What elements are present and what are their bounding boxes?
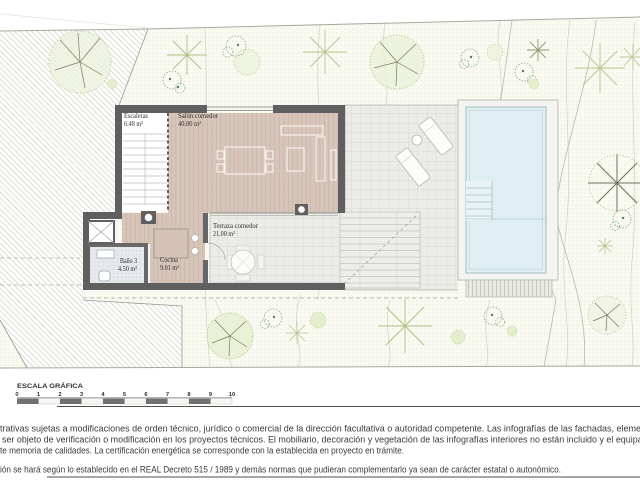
room-name: Escaleras: [124, 112, 148, 120]
room-area: 40.00 m²: [178, 120, 201, 128]
room-name: Terraza comedor: [213, 222, 259, 230]
tree-icon: [588, 296, 626, 334]
room-area: 9.01 m²: [160, 264, 179, 272]
disclaimer-line: trativas sujetas a modificaciones de ord…: [0, 424, 640, 434]
scale-tick-label: 4: [101, 392, 105, 398]
tree-icon: [49, 31, 111, 93]
side-table: [412, 135, 422, 145]
palm-tree-icon: [167, 35, 207, 75]
floor-plan-page: Escaleras 6.48 m² Salón comedor 40.00 m²…: [0, 0, 640, 480]
bush-icon: [451, 330, 465, 344]
room-name: Cocina: [160, 256, 179, 264]
disclaimer-block: trativas sujetas a modificaciones de ord…: [0, 407, 640, 478]
room-name: Salón comedor: [178, 112, 219, 120]
palm-tree-icon: [597, 238, 613, 254]
exterior-stairs: [340, 212, 420, 288]
scale-bar: ESCALA GRÁFICA 0 1 2 3 4 5 6 7 8 9 10: [15, 381, 235, 404]
disclaimer-line: ser objeto de verificación o modificació…: [2, 435, 640, 445]
bush-icon: [507, 326, 517, 336]
scale-segments: [17, 399, 232, 405]
scale-tick-label: 6: [144, 392, 148, 398]
scale-bar-numbers: 0 1 2 3 4 5 6 7 8 9 10: [15, 392, 235, 398]
room-area: 6.48 m²: [124, 120, 143, 128]
room-name: Baño 3: [120, 257, 137, 265]
toilet: [99, 271, 110, 281]
bush-icon: [310, 312, 326, 328]
column-marker: [295, 204, 308, 215]
sink: [97, 250, 114, 258]
palm-tree-icon: [527, 39, 549, 61]
tree-icon: [234, 49, 260, 75]
kitchen-stool: [192, 248, 199, 255]
scale-tick-label: 1: [37, 392, 41, 398]
scale-tick-label: 2: [58, 392, 61, 398]
tree-icon: [487, 44, 503, 60]
scale-tick-label: 10: [229, 392, 235, 398]
bush-icon: [108, 80, 117, 89]
scale-bar-title: ESCALA GRÁFICA: [17, 381, 83, 390]
scale-tick-label: 9: [209, 392, 213, 398]
site-plan-drawing: Escaleras 6.48 m² Salón comedor 40.00 m²…: [0, 0, 640, 480]
palm-tree-icon: [286, 322, 308, 344]
room-area: 4.50 m²: [118, 265, 137, 273]
scale-tick-label: 0: [15, 392, 18, 398]
tree-icon: [370, 35, 424, 89]
palm-tree-icon: [378, 299, 432, 353]
disclaimer-line: ión se hará según lo establecido en el R…: [0, 465, 561, 475]
scale-tick-label: 8: [187, 392, 191, 398]
scale-tick-label: 3: [80, 392, 84, 398]
elevator-shaft: [88, 221, 114, 243]
room-area: 21.00 m²: [213, 230, 235, 238]
pool-steps: [466, 181, 492, 221]
column-marker: [141, 211, 156, 224]
tree-icon: [207, 313, 253, 359]
kitchen-island: [154, 229, 188, 258]
scale-tick-label: 7: [166, 392, 169, 398]
pool-deck: [466, 280, 552, 297]
kitchen-stool: [192, 235, 199, 242]
disclaimer-line: te memoria de calidades. La certificació…: [0, 446, 404, 456]
scale-tick-label: 5: [123, 392, 127, 398]
bush-icon: [529, 79, 539, 89]
pool: [458, 100, 558, 280]
